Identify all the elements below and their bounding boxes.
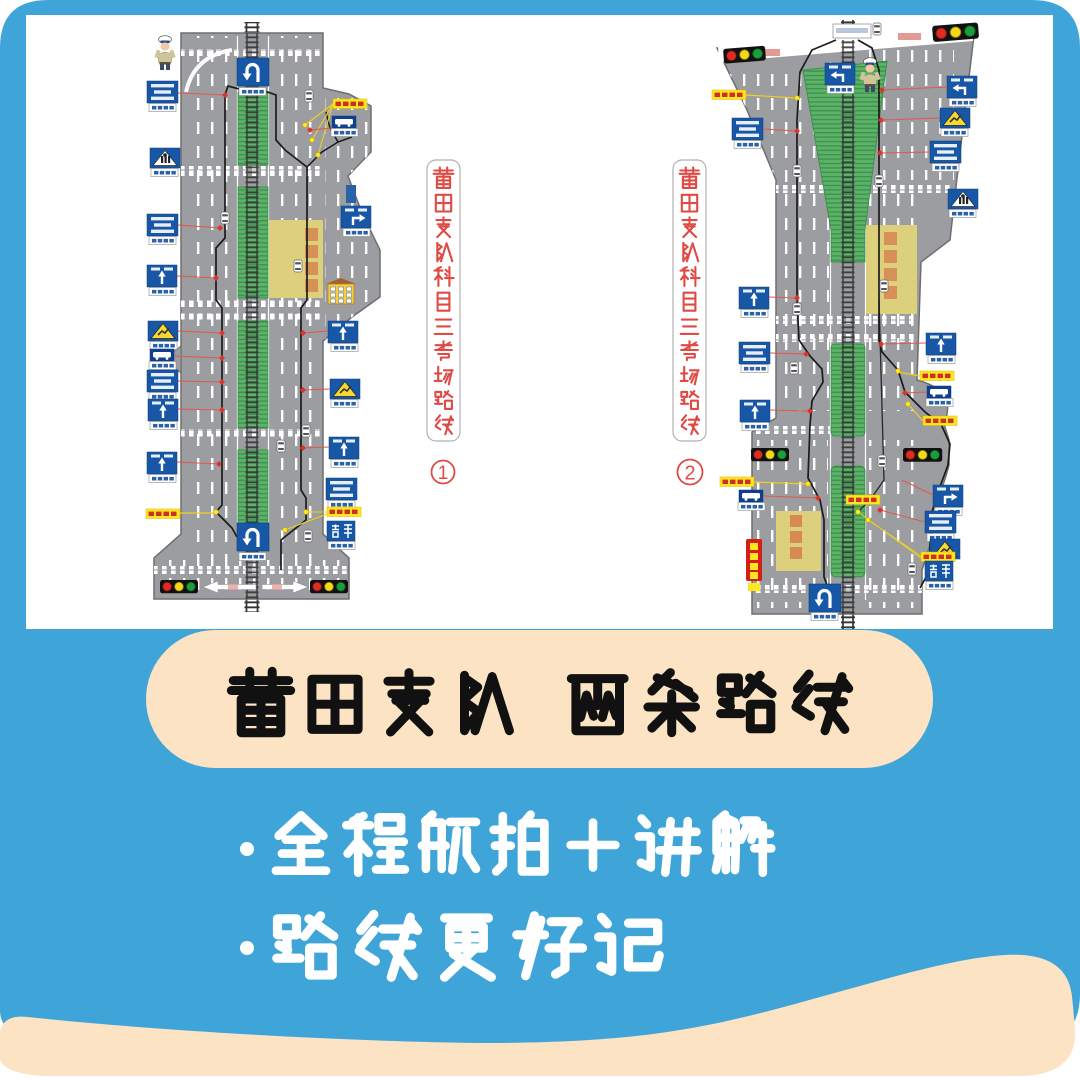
svg-text:2: 2: [684, 463, 695, 485]
svg-text:1: 1: [438, 463, 449, 484]
